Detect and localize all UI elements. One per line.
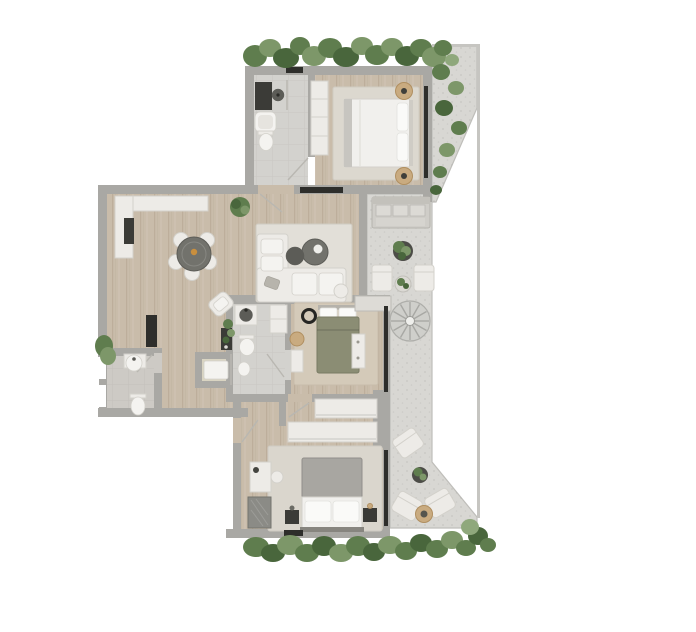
- terrace-railing: [477, 45, 480, 518]
- window: [286, 67, 303, 73]
- bedroom-middle: [290, 303, 378, 385]
- floor-plan-canvas: [0, 0, 696, 632]
- headboard: [300, 527, 364, 532]
- tray: [314, 245, 323, 254]
- toilet: [131, 397, 145, 415]
- double-bed: [302, 458, 362, 498]
- nightstand: [363, 508, 377, 522]
- round-table: [416, 506, 433, 523]
- window: [284, 530, 303, 536]
- pouf: [334, 284, 348, 298]
- potted-plant: [393, 241, 413, 261]
- bench: [291, 350, 303, 372]
- stool: [271, 471, 283, 483]
- bidet: [238, 362, 250, 376]
- window: [300, 187, 343, 193]
- window: [384, 306, 388, 392]
- stool: [290, 332, 304, 346]
- pillow: [397, 133, 408, 161]
- nightstand: [285, 510, 299, 524]
- headboard: [409, 100, 413, 166]
- window: [384, 450, 388, 526]
- wardrobe: [311, 81, 328, 155]
- toilet: [259, 134, 273, 151]
- spiral-staircase: [390, 301, 430, 341]
- bedroom-bottom: [248, 446, 382, 532]
- pillow: [305, 501, 331, 522]
- pillow: [333, 501, 359, 522]
- window: [424, 86, 428, 178]
- powder-window: [97, 385, 106, 407]
- planted-border-top: [243, 37, 452, 68]
- side-table: [395, 276, 411, 292]
- centerpiece: [191, 249, 197, 255]
- floor-plan-drawing: [0, 0, 696, 632]
- bed-foot-bench: [344, 99, 352, 167]
- desk-mirror: [253, 467, 259, 473]
- outdoor-sofa: [372, 197, 430, 228]
- toilet: [240, 339, 255, 356]
- shower-tray: [204, 361, 228, 379]
- pillow: [397, 103, 408, 131]
- outdoor-chair: [414, 265, 434, 291]
- coffee-table: [286, 247, 304, 265]
- potted-plant: [412, 467, 428, 483]
- desk: [250, 462, 271, 492]
- outdoor-chair: [372, 265, 392, 291]
- floor-plant: [230, 197, 250, 217]
- fireplace: [146, 315, 157, 347]
- tv-panel: [124, 218, 134, 244]
- dresser: [352, 334, 365, 368]
- vanity: [255, 82, 272, 110]
